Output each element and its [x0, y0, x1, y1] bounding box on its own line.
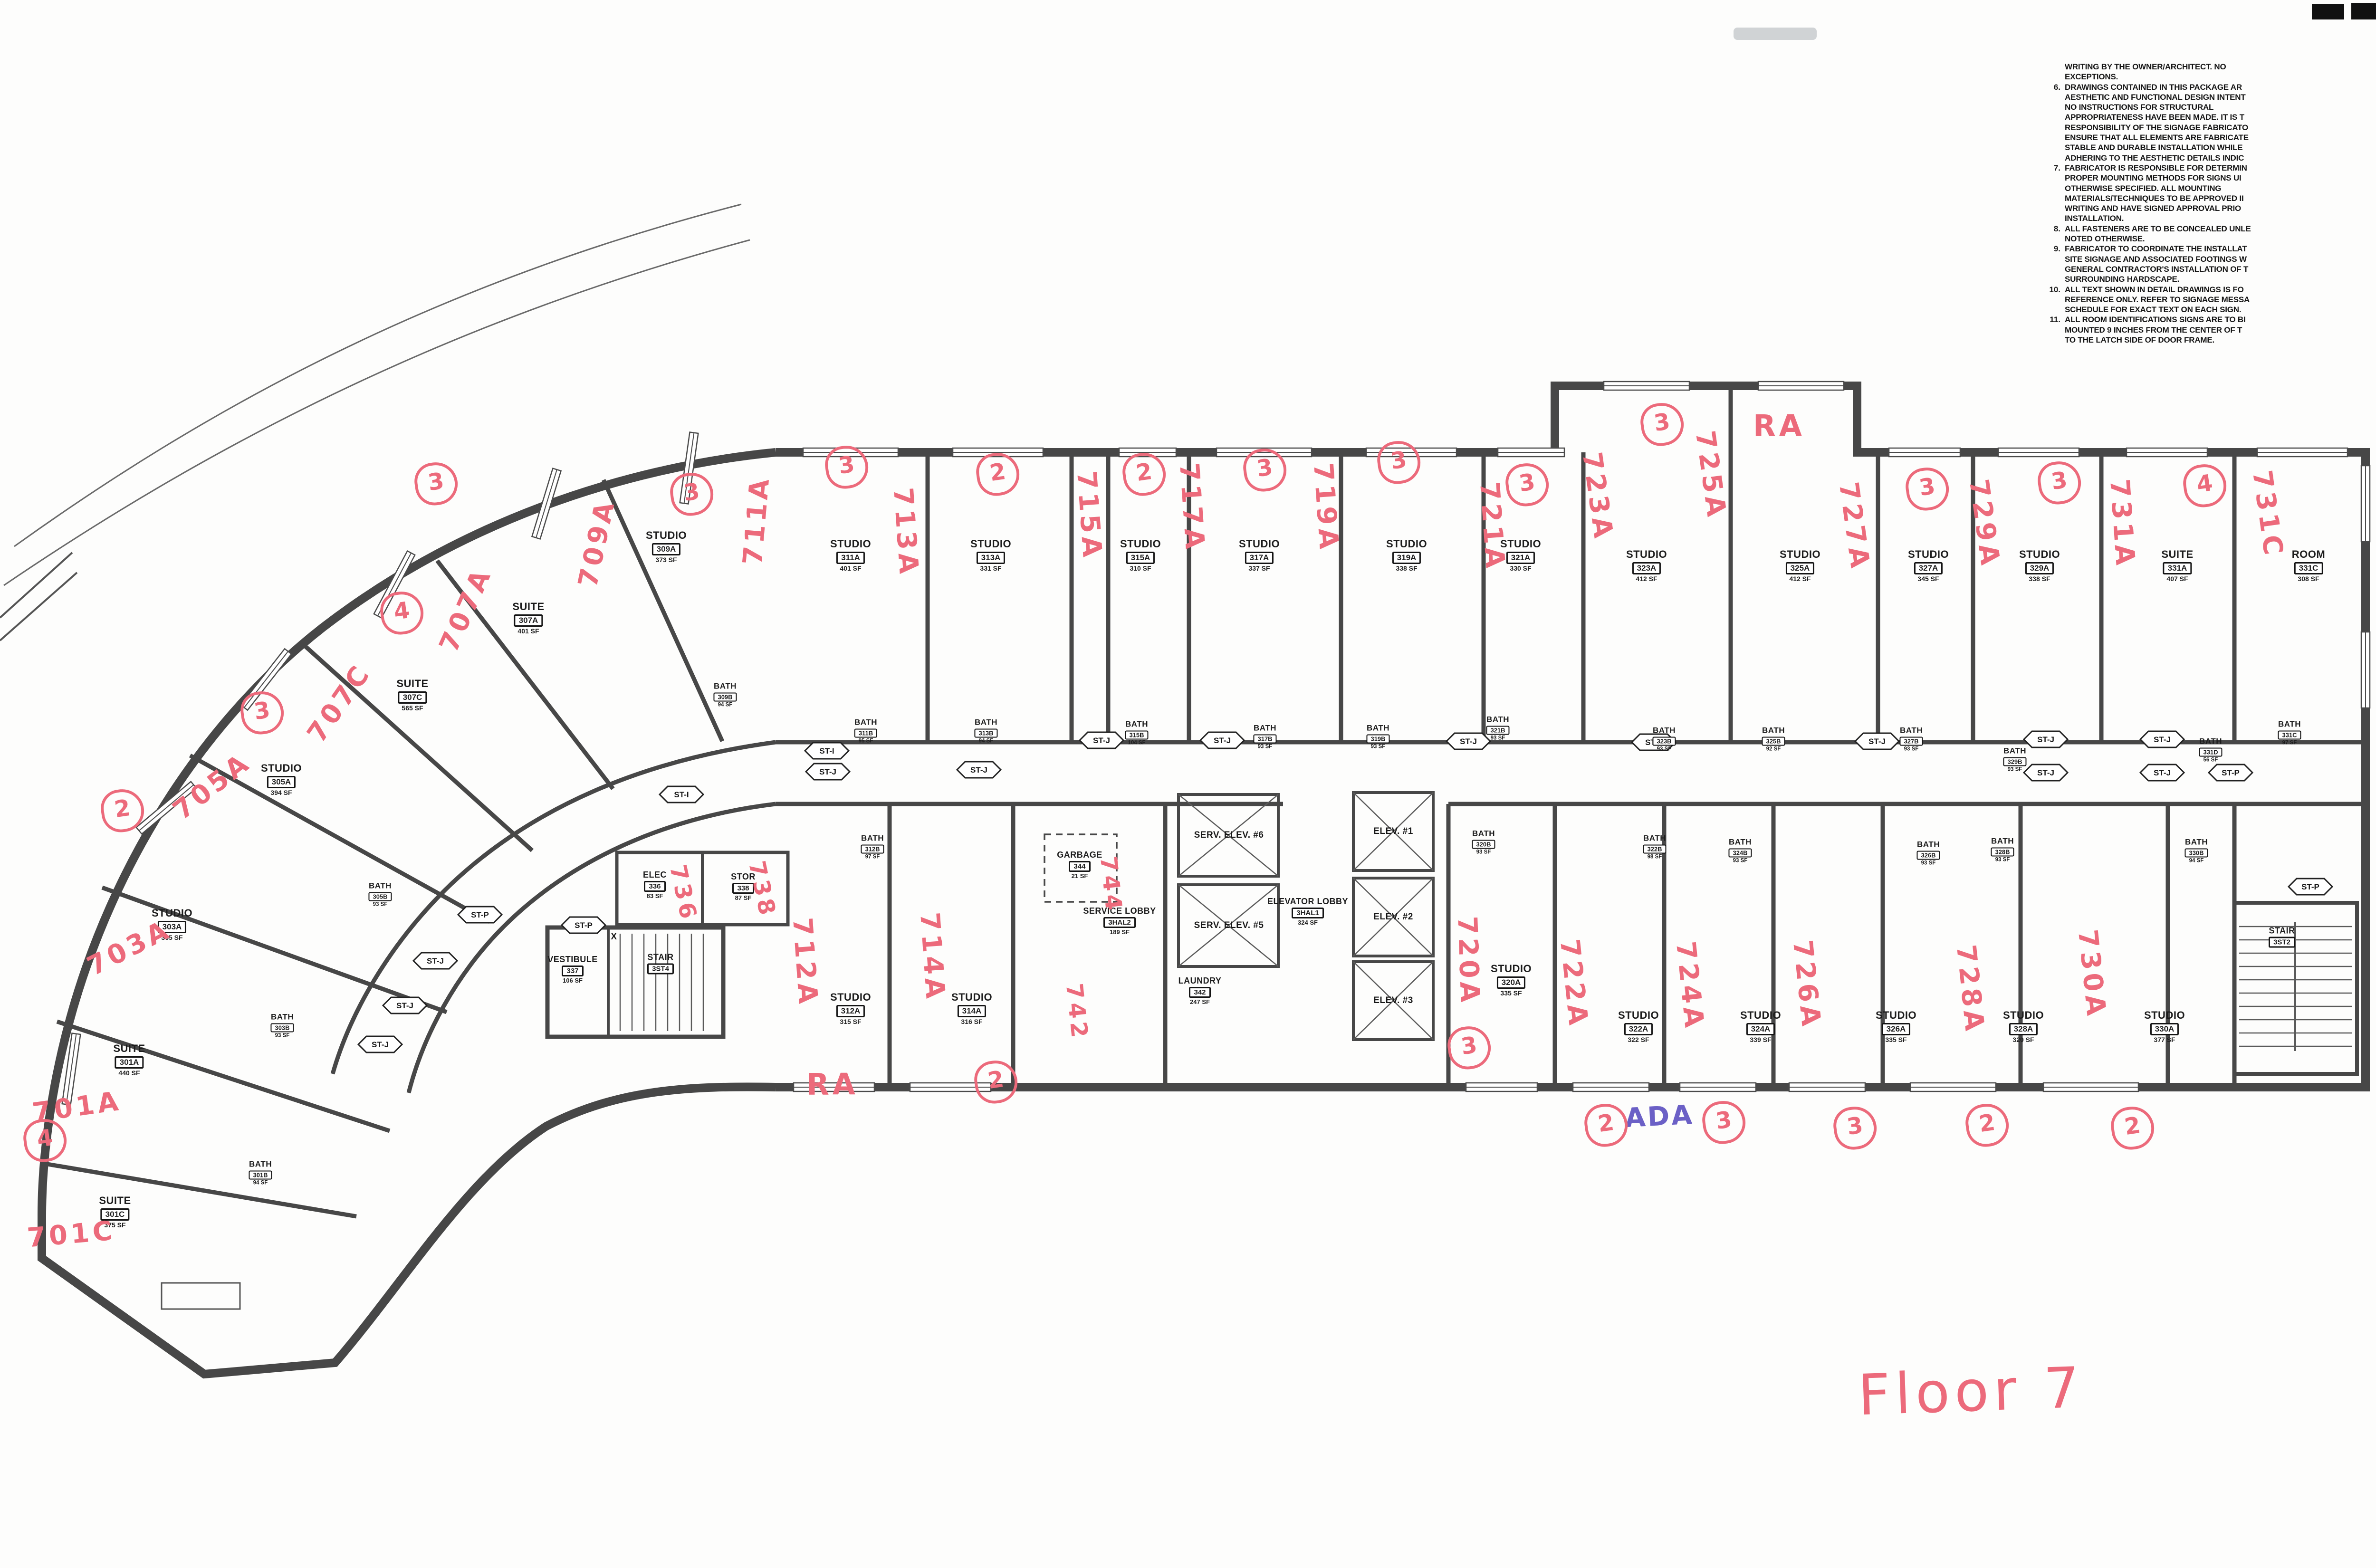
note-number — [2035, 123, 2065, 133]
room-label-319a: STUDIO319A338 SF — [1386, 538, 1427, 572]
note-line: STABLE AND DURABLE INSTALLATION WHILE — [2035, 143, 2376, 153]
room-area: 335 SF — [1876, 1036, 1916, 1043]
room-area: 394 SF — [261, 789, 302, 796]
note-number: 11. — [2035, 315, 2065, 325]
handwritten-red-713a: 713A — [887, 487, 924, 578]
room-area: 373 SF — [646, 556, 687, 564]
printed-text-elev-1: ELEV. #1 — [1373, 826, 1413, 837]
keynote-marker-st-j: ST-J — [957, 762, 1001, 778]
room-type-label: STUDIO — [1780, 548, 1820, 561]
room-type-label: STUDIO — [951, 991, 992, 1004]
room-tag: 301A — [115, 1056, 144, 1069]
note-number — [2035, 234, 2065, 244]
room-tag: 301B — [249, 1171, 272, 1180]
room-tag: 327A — [1914, 562, 1943, 574]
room-area: 93 SF — [270, 1033, 294, 1039]
room-tag: 325B — [1762, 737, 1785, 746]
room-tag: 331A — [2163, 562, 2192, 574]
room-label-327a: STUDIO327A345 SF — [1908, 548, 1949, 583]
room-type-label: BATH — [1652, 726, 1676, 736]
note-line: WRITING AND HAVE SIGNED APPROVAL PRIO — [2035, 203, 2376, 213]
room-type-label: STUDIO — [1239, 538, 1280, 550]
note-text: ALL ROOM IDENTIFICATIONS SIGNS ARE TO BI — [2065, 315, 2246, 325]
note-text: STABLE AND DURABLE INSTALLATION WHILE — [2065, 143, 2242, 153]
room-tag: 3ST2 — [2269, 937, 2295, 948]
room-area: 322 SF — [1618, 1036, 1659, 1043]
scan-smudge — [1734, 28, 1817, 40]
note-text: FABRICATOR TO COORDINATE THE INSTALLAT — [2065, 244, 2247, 254]
keynote-marker-st-j: ST-J — [383, 997, 427, 1013]
note-line: NOTED OTHERWISE. — [2035, 234, 2376, 244]
room-type-label: BATH — [1253, 724, 1276, 733]
room-type-label: STAIR — [2253, 926, 2310, 936]
room-label-323a: STUDIO323A412 SF — [1626, 548, 1667, 583]
printed-text-serv-elev-6: SERV. ELEV. #6 — [1194, 830, 1264, 841]
room-label-324a: STUDIO324A339 SF — [1740, 1009, 1781, 1043]
scan-mark-bar — [2312, 4, 2344, 19]
handwritten-red-721a: 721A — [1474, 481, 1511, 572]
window-mark — [2127, 448, 2207, 457]
handwritten-red-717a: 717A — [1173, 462, 1210, 553]
keynote-marker-st-j: ST-J — [1080, 732, 1123, 748]
room-area: 331 SF — [970, 564, 1011, 572]
note-text: ALL FASTENERS ARE TO BE CONCEALED UNLE — [2065, 224, 2251, 234]
room-label-312a: STUDIO312A315 SF — [830, 991, 871, 1025]
window-mark — [1466, 1083, 1537, 1091]
room-type-label: BATH — [1486, 715, 1509, 725]
note-line: RESPONSIBILITY OF THE SIGNAGE FABRICATO — [2035, 123, 2376, 133]
window-mark — [1604, 382, 1689, 390]
window-mark — [2257, 448, 2347, 457]
note-text: FABRICATOR IS RESPONSIBLE FOR DETERMIN — [2065, 163, 2247, 173]
note-text: ALL TEXT SHOWN IN DETAIL DRAWINGS IS FO — [2065, 285, 2244, 295]
bath-label-320b: BATH320B93 SF — [1472, 829, 1495, 855]
room-type-label: BATH — [2278, 720, 2301, 729]
printed-text-elev-2: ELEV. #2 — [1373, 912, 1413, 922]
note-number — [2035, 193, 2065, 203]
note-line: 6.DRAWINGS CONTAINED IN THIS PACKAGE AR — [2035, 82, 2376, 92]
keynote-marker-st-j: ST-J — [358, 1036, 402, 1052]
note-text: WRITING AND HAVE SIGNED APPROVAL PRIO — [2065, 203, 2241, 213]
note-number — [2035, 153, 2065, 163]
room-tag: 315A — [1126, 552, 1155, 564]
note-line: APPROPRIATENESS HAVE BEEN MADE. IT IS T — [2035, 112, 2376, 122]
room-area: 92 SF — [1762, 746, 1785, 752]
keynote-marker-st-i: ST-I — [805, 743, 849, 759]
room-tag: 319A — [1392, 552, 1421, 564]
window-mark — [2361, 466, 2370, 542]
keynote-marker-st-i: ST-I — [660, 786, 703, 803]
note-text: SCHEDULE FOR EXACT TEXT ON EACH SIGN. — [2065, 305, 2241, 315]
note-number — [2035, 305, 2065, 315]
keynote-marker-st-p: ST-P — [562, 917, 605, 933]
note-number — [2035, 112, 2065, 122]
room-area: 93 SF — [1728, 858, 1752, 864]
room-type-label: STUDIO — [1626, 548, 1667, 561]
bath-label-315b: BATH315B104 SF — [1125, 720, 1148, 746]
room-tag: 324B — [1728, 849, 1752, 858]
room-area: 94 SF — [713, 702, 737, 708]
room-area: 407 SF — [2161, 575, 2193, 583]
room-label-326a: STUDIO326A335 SF — [1876, 1009, 1916, 1043]
room-tag: 303B — [270, 1023, 294, 1033]
note-text: MATERIALS/TECHNIQUES TO BE APPROVED II — [2065, 193, 2244, 203]
handwritten-red-731a: 731A — [2104, 478, 2141, 569]
window-mark — [1998, 448, 2079, 457]
handwritten-red-719a: 719A — [1307, 462, 1344, 553]
room-type-label: STUDIO — [1386, 538, 1427, 550]
room-tag: 331D — [2199, 748, 2222, 757]
bath-label-326b: BATH326B93 SF — [1916, 840, 1940, 866]
room-label-329a: STUDIO329A338 SF — [2019, 548, 2060, 583]
room-area: 56 SF — [2199, 757, 2222, 763]
room-tag: 325A — [1786, 562, 1815, 574]
room-label-309a: STUDIO309A373 SF — [646, 529, 687, 564]
room-tag: 322A — [1624, 1023, 1653, 1035]
room-tag: 320A — [1497, 976, 1526, 989]
note-number — [2035, 325, 2065, 335]
room-type-label: STAIR — [632, 953, 689, 962]
room-type-label: STUDIO — [2003, 1009, 2044, 1022]
handwritten-red-714a: 714A — [914, 911, 951, 1003]
room-area: 440 SF — [113, 1069, 145, 1077]
room-tag: 315B — [1125, 731, 1148, 740]
svg-text:ST-J: ST-J — [2037, 735, 2054, 744]
room-label-314a: STUDIO314A316 SF — [951, 991, 992, 1025]
room-area: 93 SF — [1652, 746, 1676, 752]
room-tag: 328B — [1991, 848, 2014, 857]
service-label-342: LAUNDRY342247 SF — [1159, 976, 1240, 1005]
room-type-label: STUDIO — [261, 762, 302, 774]
room-area: 310 SF — [1120, 564, 1161, 572]
svg-text:ST-J: ST-J — [396, 1001, 413, 1010]
window-mark — [2361, 632, 2370, 708]
bath-label-301b: BATH301B94 SF — [249, 1160, 272, 1186]
note-line: SURROUNDING HARDSCAPE. — [2035, 274, 2376, 284]
bath-label-313b: BATH313B94 SF — [974, 718, 997, 744]
room-type-label: SUITE — [2161, 548, 2193, 561]
printed-text-serv-elev-5: SERV. ELEV. #5 — [1194, 920, 1264, 931]
svg-text:ST-J: ST-J — [1868, 737, 1886, 746]
note-number — [2035, 102, 2065, 112]
svg-text:ST-J: ST-J — [1460, 737, 1477, 746]
keynote-marker-st-j: ST-J — [806, 764, 850, 780]
note-line: TO THE LATCH SIDE OF DOOR FRAME. — [2035, 335, 2376, 345]
note-number — [2035, 213, 2065, 223]
room-label-301a: SUITE301A440 SF — [113, 1042, 145, 1077]
room-tag: 305A — [267, 776, 296, 788]
room-tag: 3HAL1 — [1292, 908, 1324, 918]
room-tag: 309B — [713, 693, 737, 702]
room-tag: 321A — [1506, 552, 1535, 564]
room-type-label: STUDIO — [830, 538, 871, 550]
note-text: APPROPRIATENESS HAVE BEEN MADE. IT IS T — [2065, 112, 2244, 122]
room-area: 345 SF — [1908, 575, 1949, 583]
room-tag: 331C — [2278, 731, 2301, 740]
room-tag: 317B — [1253, 735, 1276, 744]
room-type-label: SUITE — [113, 1042, 145, 1055]
note-number — [2035, 92, 2065, 102]
handwritten-red-ra: RA — [806, 1067, 859, 1102]
note-text: DRAWINGS CONTAINED IN THIS PACKAGE AR — [2065, 82, 2242, 92]
room-area: 401 SF — [512, 627, 544, 635]
room-type-label: STUDIO — [1876, 1009, 1916, 1022]
note-number — [2035, 254, 2065, 264]
note-text: SITE SIGNAGE AND ASSOCIATED FOOTINGS W — [2065, 254, 2247, 264]
room-tag: 322B — [1643, 845, 1666, 854]
room-area: 324 SF — [1260, 919, 1355, 926]
keynote-marker-st-j: ST-J — [1855, 733, 1899, 749]
note-text: NO INSTRUCTIONS FOR STRUCTURAL — [2065, 102, 2213, 112]
note-line: PROPER MOUNTING METHODS FOR SIGNS UI — [2035, 173, 2376, 183]
room-type-label: BATH — [974, 718, 997, 727]
room-area: 338 SF — [2019, 575, 2060, 583]
svg-text:ST-J: ST-J — [2037, 768, 2054, 777]
room-type-label: BATH — [368, 881, 392, 891]
note-line: ENSURE THAT ALL ELEMENTS ARE FABRICATE — [2035, 133, 2376, 143]
handwritten-red-ra: RA — [1753, 409, 1805, 443]
room-tag: 342 — [1189, 987, 1210, 998]
room-area: 94 SF — [249, 1180, 272, 1186]
room-tag: 307A — [514, 614, 543, 627]
service-label-337: VESTIBULE337106 SF — [532, 955, 613, 984]
room-area: 94 SF — [974, 738, 997, 744]
room-tag: 314A — [958, 1005, 987, 1017]
room-type-label: BATH — [1762, 726, 1785, 736]
svg-text:ST-P: ST-P — [575, 921, 593, 930]
room-area: 98 SF — [1643, 854, 1666, 860]
note-number: 10. — [2035, 285, 2065, 295]
room-type-label: ELEVATOR LOBBY — [1260, 897, 1355, 906]
window-mark — [1889, 448, 1960, 457]
note-number — [2035, 274, 2065, 284]
svg-text:ST-P: ST-P — [2222, 768, 2240, 777]
room-type-label: STUDIO — [2144, 1009, 2185, 1022]
room-tag: 331C — [2294, 562, 2323, 574]
note-line: INSTALLATION. — [2035, 213, 2376, 223]
note-line: 7.FABRICATOR IS RESPONSIBLE FOR DETERMIN — [2035, 163, 2376, 173]
svg-text:ST-J: ST-J — [819, 767, 836, 776]
note-number: 8. — [2035, 224, 2065, 234]
bath-label-330b: BATH330B94 SF — [2184, 838, 2208, 864]
note-text: WRITING BY THE OWNER/ARCHITECT. NO — [2065, 62, 2226, 72]
room-type-label: STUDIO — [2019, 548, 2060, 561]
keynote-marker-st-j: ST-J — [2140, 731, 2184, 747]
note-number — [2035, 72, 2065, 82]
room-tag: 309A — [652, 543, 681, 555]
room-tag: 305B — [368, 892, 392, 901]
note-line: WRITING BY THE OWNER/ARCHITECT. NO — [2035, 62, 2376, 72]
room-area: 320 SF — [2003, 1036, 2044, 1043]
room-tag: 317A — [1245, 552, 1274, 564]
room-area: 565 SF — [396, 704, 428, 712]
svg-text:ST-I: ST-I — [819, 746, 834, 755]
bath-label-322b: BATH322B98 SF — [1643, 834, 1666, 860]
room-tag: 319B — [1366, 735, 1389, 744]
note-line: GENERAL CONTRACTOR'S INSTALLATION OF T — [2035, 264, 2376, 274]
svg-text:ST-I: ST-I — [674, 790, 689, 799]
note-number — [2035, 62, 2065, 72]
general-notes-block: WRITING BY THE OWNER/ARCHITECT. NOEXCEPT… — [2035, 62, 2376, 345]
note-text: NOTED OTHERWISE. — [2065, 234, 2145, 244]
note-number — [2035, 173, 2065, 183]
room-area: 337 SF — [1239, 564, 1280, 572]
room-area: 93 SF — [1253, 744, 1276, 750]
room-label-322a: STUDIO322A322 SF — [1618, 1009, 1659, 1043]
room-label-311a: STUDIO311A401 SF — [830, 538, 871, 572]
room-area: 93 SF — [1486, 736, 1509, 741]
room-type-label: BATH — [1991, 837, 2014, 846]
service-label-3hal1: ELEVATOR LOBBY3HAL1324 SF — [1260, 897, 1355, 926]
room-type-label: BATH — [1125, 720, 1148, 729]
room-label-331c: ROOM331C308 SF — [2292, 548, 2325, 583]
room-label-328a: STUDIO328A320 SF — [2003, 1009, 2044, 1043]
bath-label-319b: BATH319B93 SF — [1366, 724, 1389, 750]
room-tag: 313B — [974, 729, 997, 738]
note-text: PROPER MOUNTING METHODS FOR SIGNS UI — [2065, 173, 2242, 183]
room-area: 412 SF — [1626, 575, 1667, 583]
room-area: 93 SF — [1899, 746, 1923, 752]
room-tag: 311B — [854, 729, 877, 738]
room-type-label: BATH — [1899, 726, 1923, 736]
note-line: 11.ALL ROOM IDENTIFICATIONS SIGNS ARE TO… — [2035, 315, 2376, 325]
room-type-label: BATH — [861, 834, 884, 843]
room-area: 339 SF — [1740, 1036, 1781, 1043]
note-line: AESTHETIC AND FUNCTIONAL DESIGN INTENT — [2035, 92, 2376, 102]
room-label-305a: STUDIO305A394 SF — [261, 762, 302, 796]
room-label-317a: STUDIO317A337 SF — [1239, 538, 1280, 572]
room-area: 104 SF — [1125, 740, 1148, 746]
note-line: 8.ALL FASTENERS ARE TO BE CONCEALED UNLE — [2035, 224, 2376, 234]
room-type-label: STUDIO — [1618, 1009, 1659, 1022]
room-type-label: STUDIO — [1120, 538, 1161, 550]
note-number — [2035, 335, 2065, 345]
room-type-label: STUDIO — [1908, 548, 1949, 561]
svg-text:ST-J: ST-J — [372, 1040, 389, 1049]
bath-label-312b: BATH312B97 SF — [861, 834, 884, 860]
window-mark — [2043, 1083, 2138, 1091]
note-number — [2035, 143, 2065, 153]
note-line: REFERENCE ONLY. REFER TO SIGNAGE MESSA — [2035, 295, 2376, 305]
bath-label-311b: BATH311B95 SF — [854, 718, 877, 744]
room-tag: 3ST4 — [647, 964, 674, 975]
note-text: ENSURE THAT ALL ELEMENTS ARE FABRICATE — [2065, 133, 2249, 143]
room-label-315a: STUDIO315A310 SF — [1120, 538, 1161, 572]
room-area: 412 SF — [1780, 575, 1820, 583]
room-tag: 321B — [1486, 726, 1509, 735]
room-area: 93 SF — [1991, 857, 2014, 863]
bath-label-309b: BATH309B94 SF — [713, 682, 737, 708]
note-line: SCHEDULE FOR EXACT TEXT ON EACH SIGN. — [2035, 305, 2376, 315]
room-tag: 3HAL2 — [1103, 917, 1136, 928]
room-area: 377 SF — [2144, 1036, 2185, 1043]
keynote-marker-st-p: ST-P — [458, 907, 502, 923]
room-tag: 326A — [1882, 1023, 1911, 1035]
room-tag: 312A — [836, 1005, 865, 1017]
room-type-label: BATH — [2184, 838, 2208, 847]
note-text: RESPONSIBILITY OF THE SIGNAGE FABRICATO — [2065, 123, 2248, 133]
room-type-label: BATH — [1916, 840, 1940, 850]
room-area: 95 SF — [854, 738, 877, 744]
bath-label-321b: BATH321B93 SF — [1486, 715, 1509, 741]
room-tag: 323B — [1652, 737, 1676, 746]
room-tag: 320B — [1472, 840, 1495, 849]
keynote-marker-st-j: ST-J — [2024, 731, 2068, 747]
svg-text:ST-J: ST-J — [2154, 735, 2171, 744]
note-number — [2035, 264, 2065, 274]
room-label-330a: STUDIO330A377 SF — [2144, 1009, 2185, 1043]
room-label-313a: STUDIO313A331 SF — [970, 538, 1011, 572]
room-type-label: SUITE — [396, 678, 428, 690]
bath-label-328b: BATH328B93 SF — [1991, 837, 2014, 863]
bath-label-303b: BATH303B93 SF — [270, 1013, 294, 1039]
svg-text:ST-J: ST-J — [2154, 768, 2171, 777]
room-area: 316 SF — [951, 1018, 992, 1025]
room-type-label: BATH — [2003, 746, 2026, 756]
keynote-marker-st-j: ST-J — [1200, 732, 1244, 748]
note-line: EXCEPTIONS. — [2035, 72, 2376, 82]
room-type-label: BATH — [1728, 838, 1752, 847]
room-tag: 307C — [398, 691, 427, 704]
room-area: 401 SF — [830, 564, 871, 572]
note-line: MATERIALS/TECHNIQUES TO BE APPROVED II — [2035, 193, 2376, 203]
room-label-331a: SUITE331A407 SF — [2161, 548, 2193, 583]
room-area: 335 SF — [1491, 989, 1532, 997]
window-mark — [1789, 1083, 1865, 1091]
printed-text-elev-3: ELEV. #3 — [1373, 995, 1413, 1006]
room-type-label: LAUNDRY — [1159, 976, 1240, 985]
room-type-label: STUDIO — [646, 529, 687, 542]
note-text: INSTALLATION. — [2065, 213, 2124, 223]
handwritten-red-715a: 715A — [1071, 470, 1108, 561]
note-number — [2035, 295, 2065, 305]
note-text: AESTHETIC AND FUNCTIONAL DESIGN INTENT — [2065, 92, 2246, 102]
room-label-307c: SUITE307C565 SF — [396, 678, 428, 712]
note-line: ADHERING TO THE AESTHETIC DETAILS INDIC — [2035, 153, 2376, 163]
room-label-325a: STUDIO325A412 SF — [1780, 548, 1820, 583]
handwritten-blue-ada: ADA — [1624, 1100, 1695, 1134]
room-area: 308 SF — [2292, 575, 2325, 583]
keynote-marker-st-j: ST-J — [413, 953, 457, 969]
note-number — [2035, 183, 2065, 193]
bath-label-329b: BATH329B93 SF — [2003, 746, 2026, 773]
scan-mark-bar — [2351, 3, 2376, 19]
room-type-label: BATH — [270, 1013, 294, 1022]
handwritten-floor-note: Floor 7 — [1857, 1355, 2086, 1428]
bath-label-317b: BATH317B93 SF — [1253, 724, 1276, 750]
room-tag: 311A — [836, 552, 865, 564]
room-area: 93 SF — [2003, 767, 2026, 773]
room-area: 93 SF — [1916, 860, 1940, 866]
keynote-marker-st-j: ST-J — [1447, 733, 1490, 749]
room-type-label: STUDIO — [1740, 1009, 1781, 1022]
printed-text-x: X — [611, 932, 617, 942]
window-mark — [1498, 448, 1564, 457]
room-tag: 312B — [861, 845, 884, 854]
note-line: SITE SIGNAGE AND ASSOCIATED FOOTINGS W — [2035, 254, 2376, 264]
room-tag: 336 — [644, 881, 665, 892]
room-type-label: BATH — [854, 718, 877, 727]
svg-text:ST-J: ST-J — [970, 765, 987, 774]
note-text: REFERENCE ONLY. REFER TO SIGNAGE MESSA — [2065, 295, 2250, 305]
room-area: 93 SF — [368, 902, 392, 908]
room-tag: 344 — [1069, 861, 1090, 872]
note-text: SURROUNDING HARDSCAPE. — [2065, 274, 2179, 284]
room-area: 93 SF — [1472, 850, 1495, 855]
room-area: 97 SF — [861, 854, 884, 860]
note-text: OTHERWISE SPECIFIED. ALL MOUNTING — [2065, 183, 2221, 193]
room-label-307a: SUITE307A401 SF — [512, 601, 544, 635]
